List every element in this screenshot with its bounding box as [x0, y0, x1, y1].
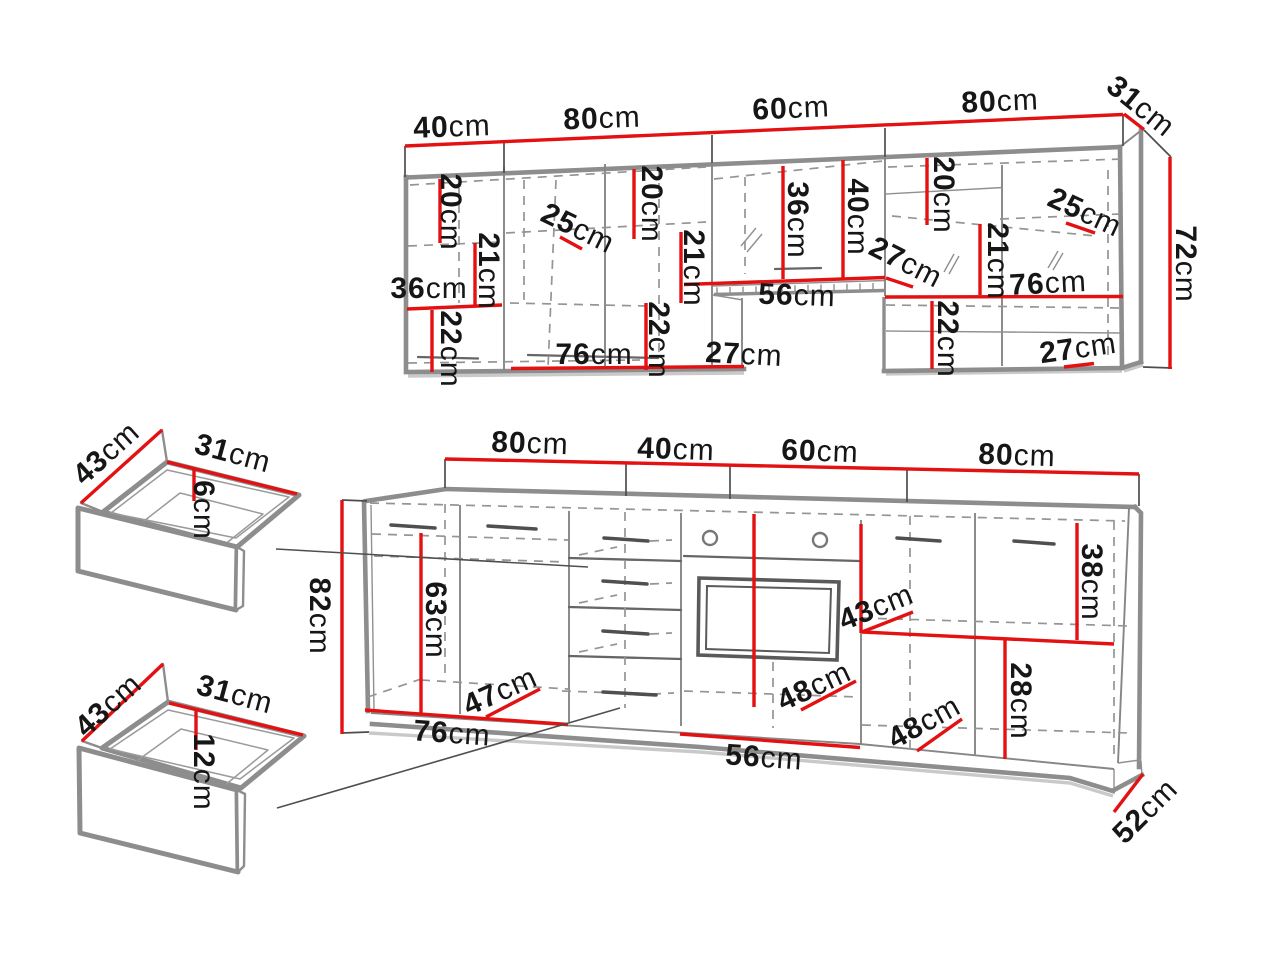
svg-text:56cm: 56cm [758, 278, 836, 314]
svg-text:6cm: 6cm [187, 480, 220, 540]
svg-text:82cm: 82cm [303, 577, 336, 654]
svg-text:40cm: 40cm [637, 432, 715, 468]
svg-text:27cm: 27cm [704, 336, 783, 373]
svg-text:36cm: 36cm [390, 272, 467, 305]
svg-text:20cm: 20cm [927, 156, 960, 233]
svg-text:72cm: 72cm [1169, 225, 1202, 302]
svg-text:80cm: 80cm [978, 438, 1056, 474]
svg-text:80cm: 80cm [563, 101, 641, 137]
svg-text:40cm: 40cm [841, 178, 874, 255]
svg-text:60cm: 60cm [752, 90, 831, 126]
svg-text:60cm: 60cm [781, 434, 859, 470]
svg-text:63cm: 63cm [419, 581, 452, 658]
svg-text:76cm: 76cm [412, 714, 491, 752]
svg-text:22cm: 22cm [931, 300, 964, 377]
svg-text:40cm: 40cm [413, 109, 491, 145]
svg-text:22cm: 22cm [434, 310, 467, 387]
svg-text:76cm: 76cm [1009, 265, 1088, 302]
svg-text:76cm: 76cm [555, 338, 632, 371]
svg-text:20cm: 20cm [635, 165, 668, 242]
svg-text:20cm: 20cm [434, 173, 467, 250]
svg-text:22cm: 22cm [642, 301, 675, 378]
svg-text:56cm: 56cm [724, 738, 803, 776]
svg-text:38cm: 38cm [1075, 543, 1108, 620]
svg-text:21cm: 21cm [677, 229, 710, 306]
svg-text:21cm: 21cm [472, 232, 505, 309]
svg-text:36cm: 36cm [781, 181, 814, 258]
svg-text:12cm: 12cm [187, 733, 220, 810]
svg-text:28cm: 28cm [1004, 662, 1037, 739]
svg-text:80cm: 80cm [961, 83, 1040, 119]
svg-text:80cm: 80cm [491, 426, 569, 462]
